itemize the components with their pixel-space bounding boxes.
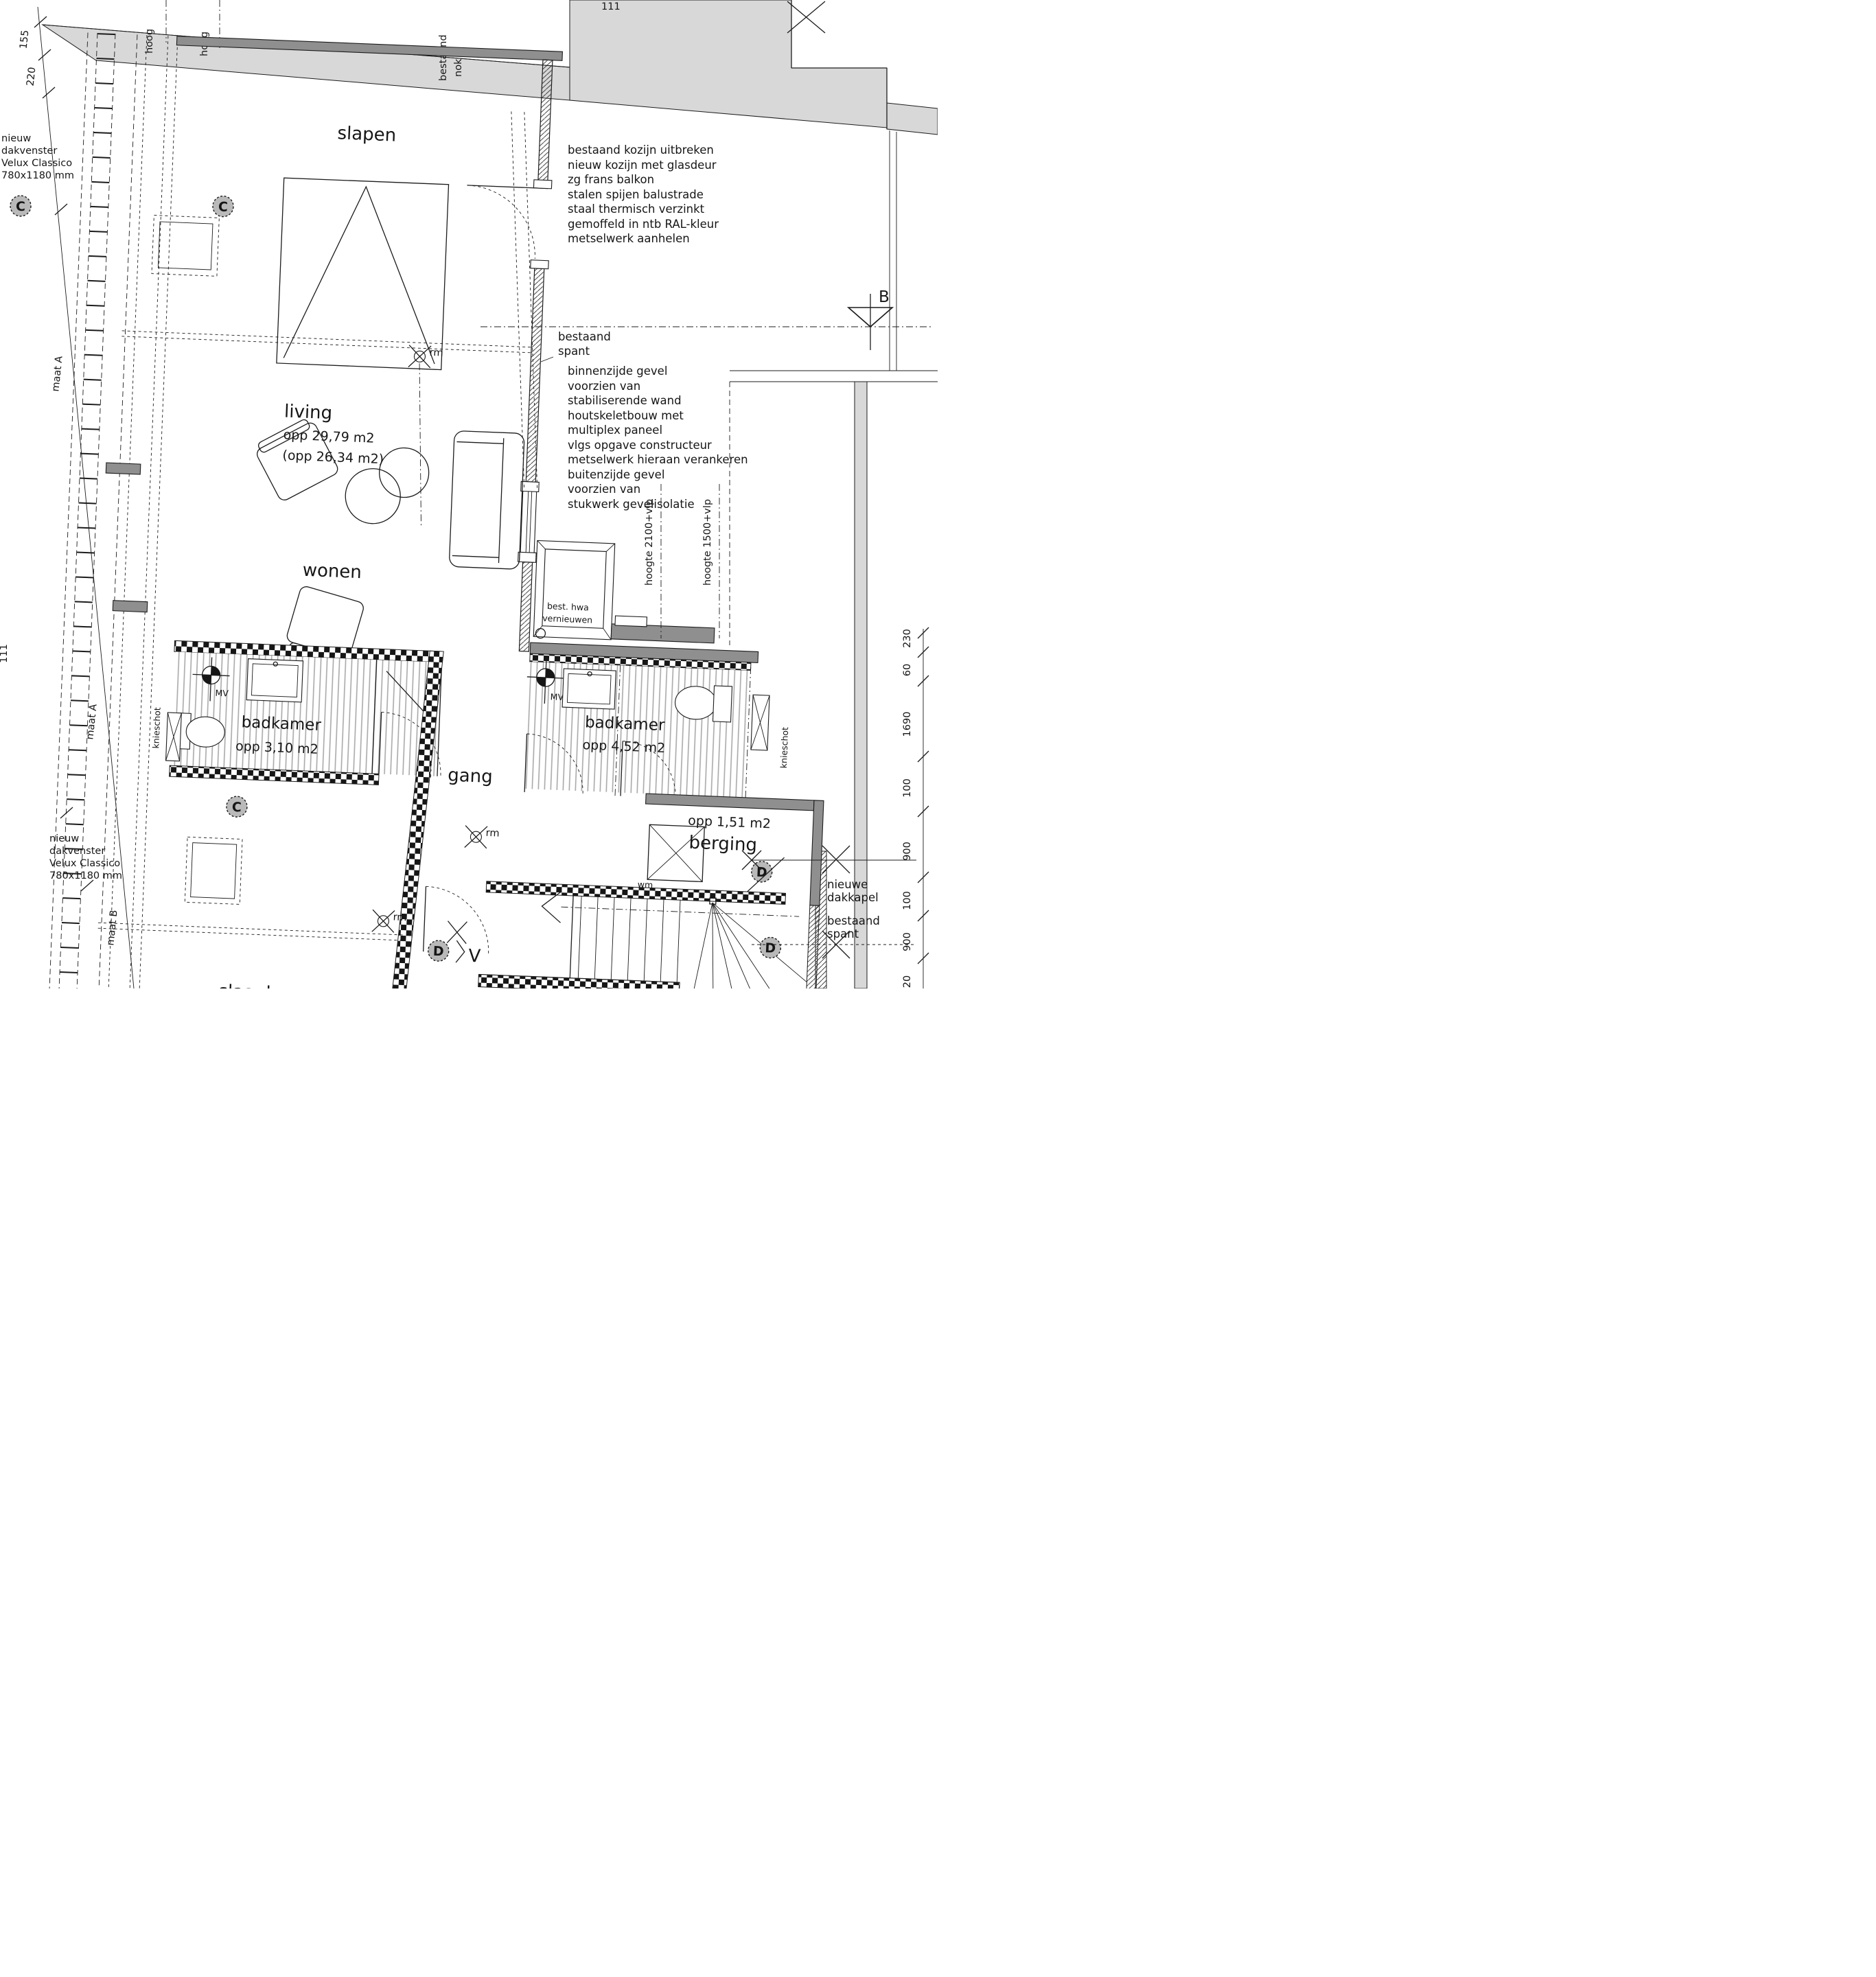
knieschot-window-frame bbox=[166, 713, 182, 761]
svg-text:binnenzijde gevel: binnenzijde gevel bbox=[568, 365, 667, 378]
floorplan-page: hoog hoog bestaand nok 111 bbox=[0, 0, 938, 988]
svg-text:dakvenster: dakvenster bbox=[49, 846, 105, 857]
dakvenster-note-top: nieuw dakvenster Velux Classico 780x1180… bbox=[1, 133, 74, 216]
svg-text:155: 155 bbox=[19, 30, 32, 49]
section-marker-b: B bbox=[848, 288, 892, 350]
section-marker-c: C bbox=[10, 196, 31, 216]
svg-text:stalen spijen balustrade: stalen spijen balustrade bbox=[568, 188, 704, 201]
svg-text:spant: spant bbox=[558, 345, 590, 358]
svg-text:100: 100 bbox=[902, 778, 913, 798]
room-label-wonen: wonen bbox=[302, 560, 362, 583]
svg-text:D: D bbox=[765, 940, 776, 956]
dakvenster-note-bottom: nieuw dakvenster Velux Classico 780x1180… bbox=[49, 833, 122, 881]
bed bbox=[277, 178, 449, 369]
section-marker-c: C bbox=[226, 796, 247, 818]
svg-text:nieuw: nieuw bbox=[49, 833, 79, 844]
hwa-shaft: best. hwa vernieuwen bbox=[533, 540, 615, 640]
axis-line bbox=[413, 363, 428, 527]
svg-text:metselwerk aanhelen: metselwerk aanhelen bbox=[568, 232, 690, 245]
svg-text:dakvenster: dakvenster bbox=[1, 146, 57, 157]
dakvenster-outline-top bbox=[152, 216, 219, 277]
svg-text:multiplex paneel: multiplex paneel bbox=[568, 424, 662, 437]
svg-text:C: C bbox=[231, 800, 242, 816]
hwa-note: vernieuwen bbox=[542, 613, 592, 625]
svg-text:780x1180 mm: 780x1180 mm bbox=[1, 170, 74, 181]
svg-text:C: C bbox=[218, 199, 229, 215]
svg-text:C: C bbox=[16, 199, 25, 214]
berging-area: opp 1,51 m2 bbox=[688, 813, 772, 832]
bestaand-nok-label: nok bbox=[453, 58, 464, 77]
svg-text:900: 900 bbox=[902, 932, 913, 951]
spant-label: bestaand spant bbox=[541, 330, 611, 362]
svg-text:nieuw: nieuw bbox=[1, 133, 31, 144]
svg-text:60: 60 bbox=[902, 664, 913, 676]
room-label-slaapkamer: slaapkamer bbox=[218, 981, 323, 988]
room-label-gang: gang bbox=[448, 765, 494, 787]
living-area: opp 29,79 m2 bbox=[283, 427, 375, 446]
hoogte-1500-label: hoogte 1500+vlp bbox=[702, 499, 713, 586]
svg-text:780x1180 mm: 780x1180 mm bbox=[49, 870, 122, 881]
svg-text:D: D bbox=[432, 944, 444, 960]
svg-text:bestaand: bestaand bbox=[558, 330, 611, 343]
neighbour-band-right bbox=[887, 103, 938, 135]
badkamer2: MV badkamer opp 4,52 m2 bbox=[522, 643, 771, 802]
knieschot-label: knieschot bbox=[778, 727, 790, 769]
room-label-berging: berging bbox=[688, 833, 758, 856]
floorplan-drawing: hoog hoog bestaand nok 111 bbox=[0, 0, 938, 988]
coffee-table bbox=[345, 467, 402, 524]
svg-text:spant: spant bbox=[827, 927, 859, 940]
svg-text:rm: rm bbox=[485, 828, 499, 840]
window-cross-icon bbox=[787, 1, 825, 33]
svg-text:voorzien van: voorzien van bbox=[568, 380, 640, 393]
svg-text:gemoffeld in ntb RAL-kleur: gemoffeld in ntb RAL-kleur bbox=[568, 218, 719, 231]
washbasin bbox=[246, 659, 303, 702]
kozijn-note-block: bestaand kozijn uitbreken nieuw kozijn m… bbox=[568, 143, 719, 245]
hwa-note: best. hwa bbox=[547, 601, 589, 612]
knieschot-label: knieschot bbox=[150, 707, 162, 749]
badkamer1: MV badkamer opp 3,10 m2 800x1200 mm bbox=[165, 651, 445, 787]
hoogte-2100-label: hoogte 2100+vlp bbox=[644, 499, 655, 586]
south-wall-roof bbox=[611, 624, 715, 643]
room-label-slapen: slapen bbox=[337, 123, 397, 146]
svg-text:111: 111 bbox=[0, 644, 10, 663]
leader bbox=[541, 357, 553, 362]
door-slapen bbox=[464, 177, 552, 269]
knieschot-window-frame bbox=[751, 695, 769, 750]
svg-text:maat A: maat A bbox=[84, 704, 99, 741]
section-marker-d: D bbox=[760, 937, 781, 958]
svg-text:staal thermisch verzinkt: staal thermisch verzinkt bbox=[568, 203, 705, 216]
neighbour-roof-band bbox=[43, 25, 570, 100]
room-label-living: living bbox=[283, 401, 332, 424]
room-label-badkamer1: badkamer bbox=[241, 713, 322, 735]
svg-text:dakkapel: dakkapel bbox=[827, 891, 879, 904]
svg-text:voorzien van: voorzien van bbox=[568, 483, 640, 496]
svg-text:B: B bbox=[879, 288, 890, 306]
svg-text:houtskeletbouw met: houtskeletbouw met bbox=[568, 409, 684, 422]
svg-text:bestaand: bestaand bbox=[827, 914, 880, 927]
ventilation-valve-icon: V bbox=[446, 921, 483, 967]
spant-line bbox=[98, 928, 404, 940]
svg-text:zg frans balkon: zg frans balkon bbox=[568, 173, 654, 186]
knieschot-window bbox=[106, 463, 141, 474]
svg-text:nieuwe: nieuwe bbox=[827, 878, 868, 891]
dimension-chain-right: 230 60 1690 100 900 100 900 20 bbox=[902, 627, 929, 988]
living-area2: (opp 26,34 m2) bbox=[282, 448, 384, 467]
neighbour-building bbox=[43, 0, 938, 988]
svg-text:100: 100 bbox=[902, 891, 913, 910]
svg-text:220: 220 bbox=[25, 67, 38, 86]
svg-text:900: 900 bbox=[902, 842, 913, 861]
slaapkamer: C rm slaapkamer bbox=[95, 791, 412, 988]
svg-text:maat A: maat A bbox=[50, 356, 65, 393]
door-leaf bbox=[424, 886, 426, 951]
svg-text:buitenzijde gevel: buitenzijde gevel bbox=[568, 468, 664, 481]
washbasin bbox=[562, 669, 616, 709]
svg-text:rm: rm bbox=[393, 912, 406, 923]
svg-text:stabiliserende wand: stabiliserende wand bbox=[568, 394, 682, 407]
sill bbox=[615, 616, 647, 627]
svg-text:metselwerk hieraan verankeren: metselwerk hieraan verankeren bbox=[568, 453, 748, 466]
room-label-badkamer2: badkamer bbox=[585, 713, 666, 735]
svg-text:maat B: maat B bbox=[105, 910, 119, 947]
bestaand-nok-label: bestaand bbox=[438, 34, 449, 81]
stairwell: D bbox=[476, 881, 820, 988]
dwelling: slapen C living opp 29,79 m2 (opp 26,34 … bbox=[48, 33, 853, 988]
hoogte-label: hoog bbox=[144, 29, 155, 54]
svg-text:V: V bbox=[468, 946, 481, 967]
svg-text:Velux Classico: Velux Classico bbox=[49, 858, 120, 869]
wall-new bbox=[486, 881, 785, 904]
section-marker-d: D bbox=[428, 940, 449, 962]
sofa bbox=[449, 430, 524, 569]
smoke-detector-icon: rm bbox=[465, 826, 500, 849]
svg-text:230: 230 bbox=[902, 629, 913, 648]
top-dim: 111 bbox=[601, 1, 621, 12]
gang-door: D V bbox=[423, 886, 491, 967]
svg-text:20: 20 bbox=[902, 975, 913, 988]
gevel-note-block: binnenzijde gevel voorzien van stabilise… bbox=[568, 365, 748, 511]
section-marker-c: C bbox=[212, 196, 233, 217]
svg-text:1690: 1690 bbox=[902, 712, 913, 737]
coffee-table bbox=[378, 447, 430, 498]
knieschot-window bbox=[113, 601, 148, 612]
svg-text:MV: MV bbox=[215, 688, 229, 699]
svg-text:bestaand kozijn uitbreken: bestaand kozijn uitbreken bbox=[568, 143, 714, 157]
dakvenster-outline-bottom bbox=[185, 837, 242, 904]
svg-text:stukwerk gevelisolatie: stukwerk gevelisolatie bbox=[568, 498, 695, 511]
svg-text:vlgs opgave constructeur: vlgs opgave constructeur bbox=[568, 439, 712, 452]
svg-text:rm: rm bbox=[429, 347, 443, 359]
spant-line bbox=[98, 923, 404, 935]
svg-text:Velux Classico: Velux Classico bbox=[1, 158, 72, 169]
neighbour-block bbox=[570, 0, 887, 128]
svg-text:MV: MV bbox=[550, 691, 564, 702]
svg-text:nieuw kozijn met glasdeur: nieuw kozijn met glasdeur bbox=[568, 159, 717, 172]
